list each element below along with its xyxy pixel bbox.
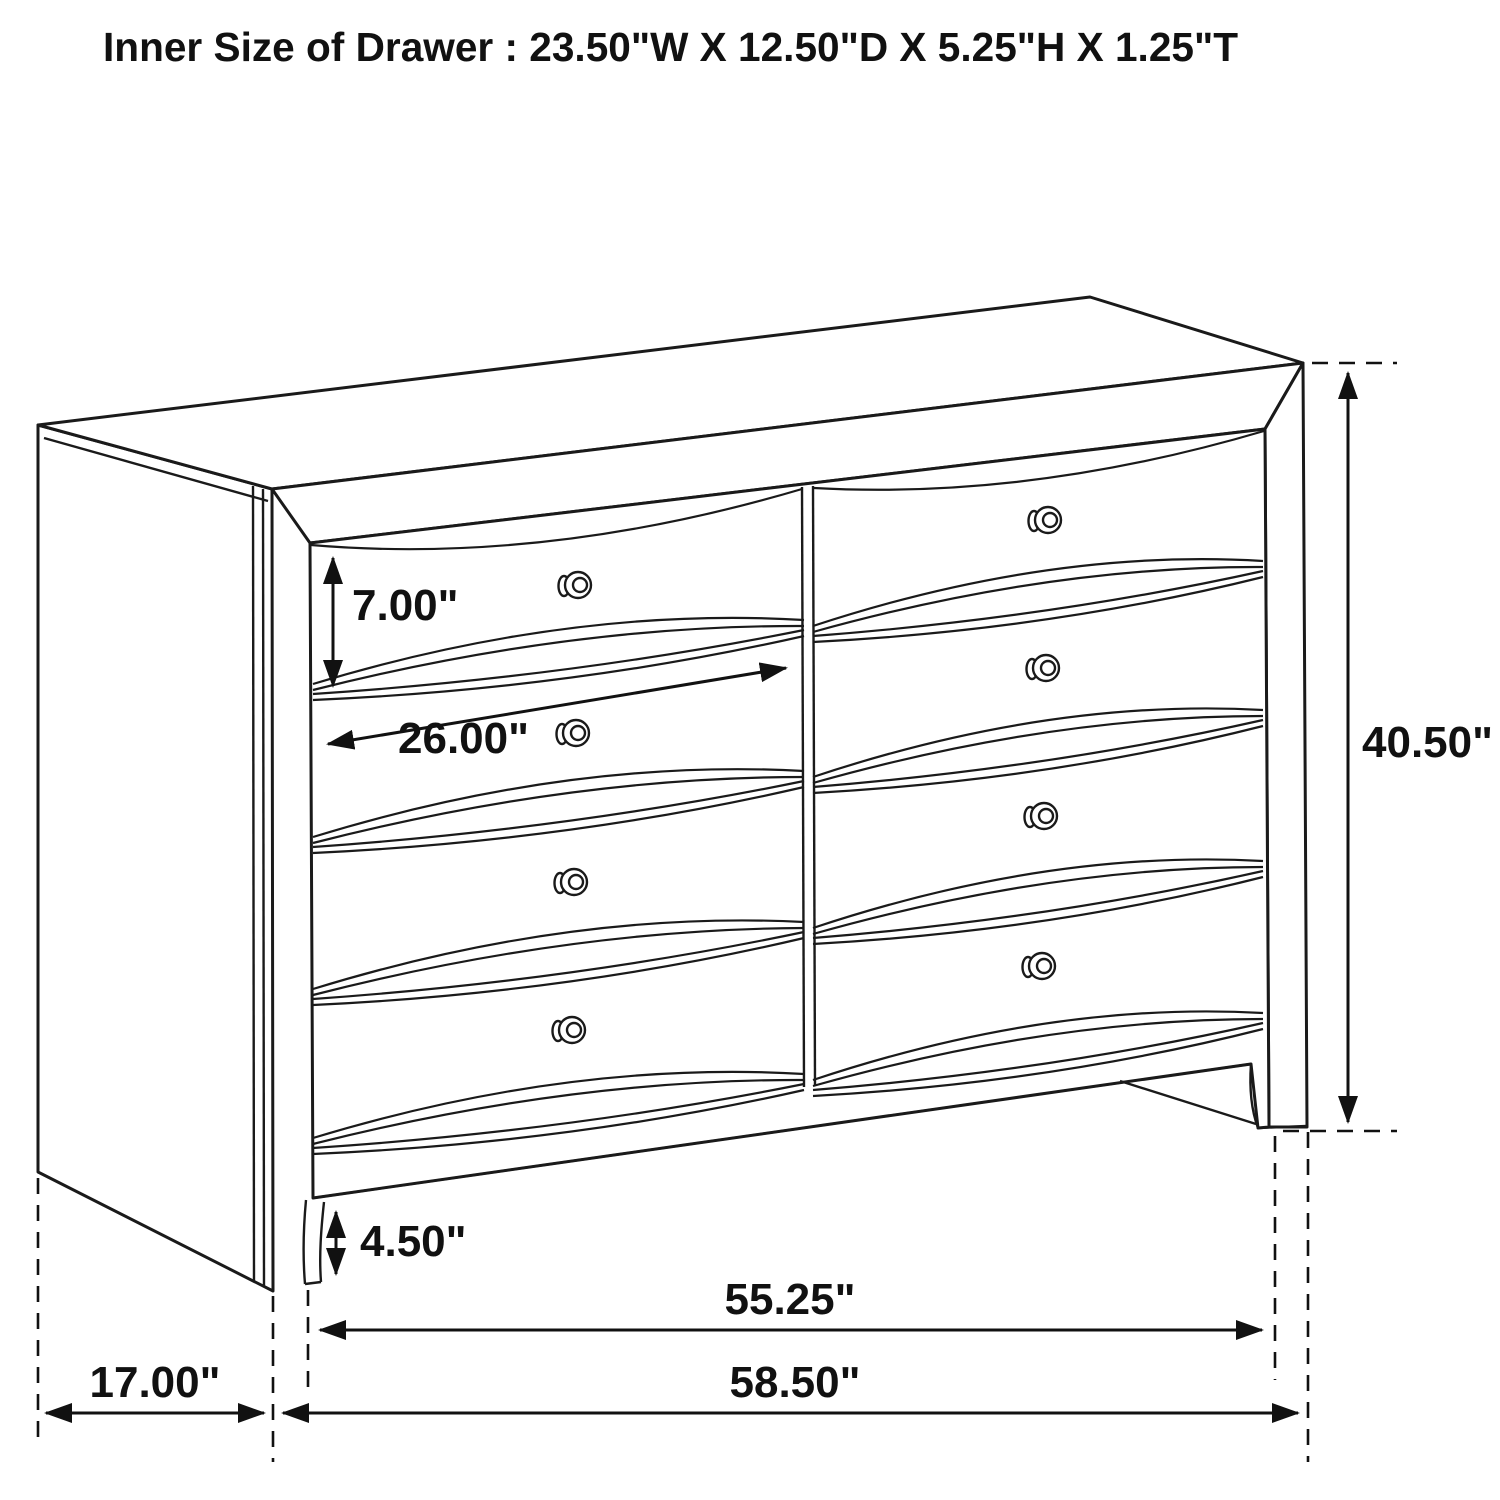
- front-left-leg: [304, 1200, 324, 1284]
- depth-label: 17.00": [90, 1358, 221, 1407]
- dimension-front-width: 55.25": [320, 1275, 1262, 1330]
- right-side-strip: [1265, 363, 1307, 1127]
- overall-width-label: 58.50": [730, 1358, 861, 1407]
- front-width-label: 55.25": [725, 1275, 856, 1324]
- dresser-dimension-diagram: Inner Size of Drawer : 23.50"W X 12.50"D…: [0, 0, 1500, 1500]
- side-panel: [38, 425, 273, 1291]
- dimension-overall-height: 40.50": [1348, 373, 1493, 1122]
- page-title: Inner Size of Drawer : 23.50"W X 12.50"D…: [103, 24, 1238, 70]
- dimension-depth: 17.00": [46, 1358, 264, 1413]
- dimension-overall-width: 58.50": [283, 1358, 1298, 1413]
- foot-height-label: 4.50": [360, 1217, 467, 1266]
- back-leg-line: [1120, 1081, 1256, 1124]
- drawer-height-label: 7.00": [352, 581, 459, 630]
- diagram-canvas: Inner Size of Drawer : 23.50"W X 12.50"D…: [0, 0, 1500, 1500]
- drawer-width-label: 26.00": [398, 714, 529, 763]
- dresser-drawing: [38, 297, 1307, 1291]
- overall-height-label: 40.50": [1362, 718, 1493, 767]
- dimension-foot-height: 4.50": [336, 1212, 467, 1274]
